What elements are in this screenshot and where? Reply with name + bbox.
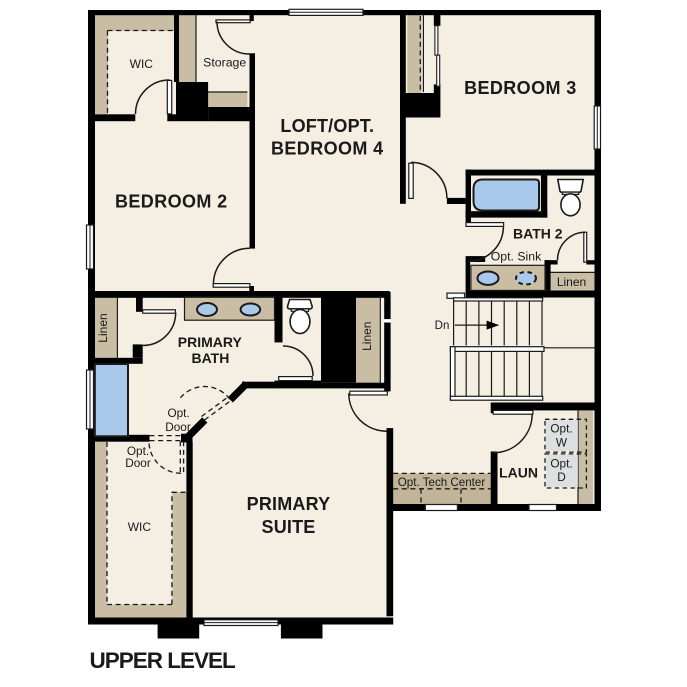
svg-text:D: D (557, 470, 566, 484)
svg-text:BATH: BATH (191, 350, 229, 366)
svg-text:LAUN: LAUN (499, 465, 538, 481)
svg-text:Opt.: Opt. (167, 406, 189, 420)
svg-text:WIC: WIC (130, 57, 154, 71)
svg-text:Linen: Linen (360, 322, 374, 351)
svg-text:WIC: WIC (128, 520, 152, 534)
svg-text:Dn: Dn (435, 320, 450, 332)
svg-text:W: W (556, 435, 568, 449)
svg-text:BEDROOM 2: BEDROOM 2 (115, 192, 228, 212)
svg-text:BEDROOM 3: BEDROOM 3 (464, 78, 577, 98)
svg-text:Door: Door (165, 420, 191, 434)
svg-text:Storage: Storage (203, 56, 246, 70)
svg-text:Door: Door (125, 456, 151, 470)
svg-text:Linen: Linen (96, 313, 110, 342)
svg-text:LOFT/OPT.: LOFT/OPT. (280, 116, 374, 136)
svg-text:PRIMARY: PRIMARY (178, 334, 243, 350)
svg-text:Opt.: Opt. (550, 422, 572, 436)
svg-text:PRIMARY: PRIMARY (247, 494, 331, 514)
svg-text:BATH 2: BATH 2 (513, 226, 563, 242)
svg-text:Opt. Tech Center: Opt. Tech Center (398, 476, 486, 489)
svg-text:SUITE: SUITE (261, 517, 315, 537)
svg-text:Opt. Sink: Opt. Sink (491, 250, 542, 264)
svg-text:BEDROOM 4: BEDROOM 4 (271, 138, 384, 158)
svg-text:Opt.: Opt. (550, 457, 572, 471)
svg-text:UPPER LEVEL: UPPER LEVEL (90, 648, 237, 673)
svg-text:Linen: Linen (557, 275, 586, 289)
